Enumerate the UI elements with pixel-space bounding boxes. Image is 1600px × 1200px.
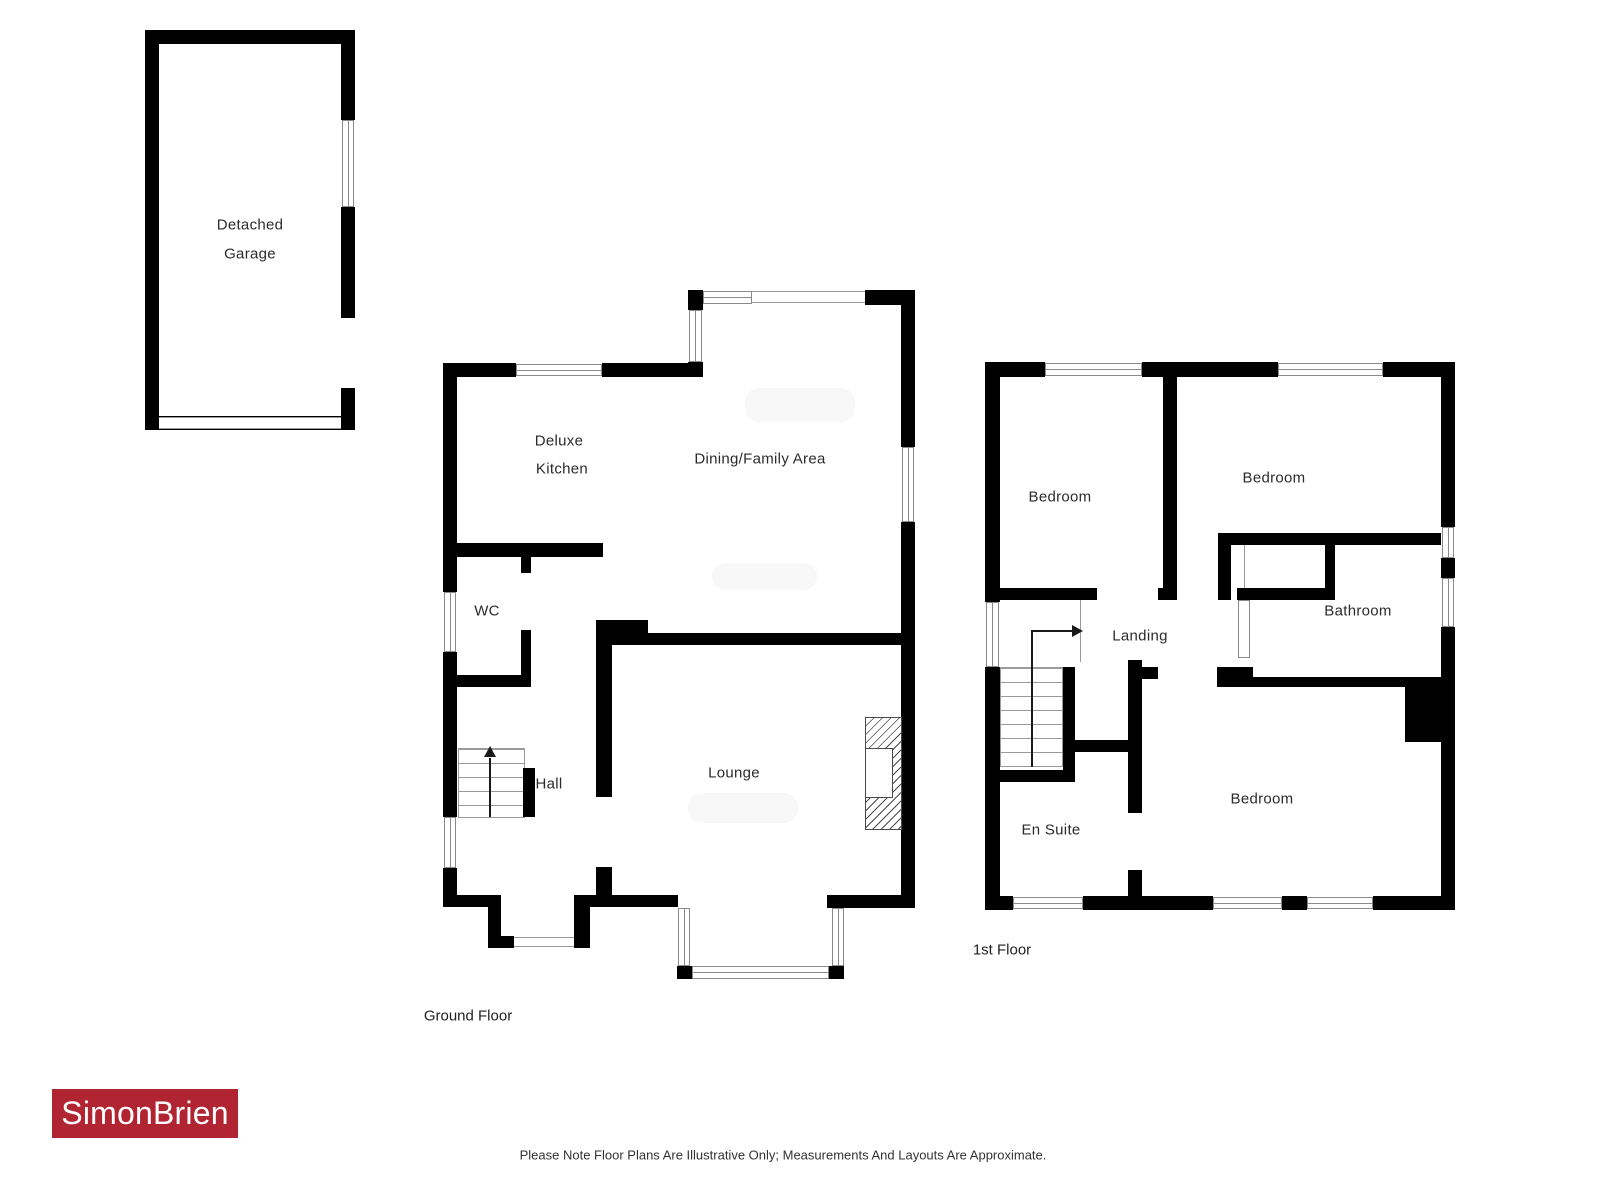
wall [901, 290, 915, 447]
wall [1237, 588, 1335, 600]
wall [1142, 362, 1278, 377]
wall [443, 675, 531, 687]
room-label-hall: Hall [535, 776, 562, 793]
window [1442, 578, 1454, 627]
floor-plan-canvas: Detached Garage [0, 0, 1600, 1200]
wall [1441, 362, 1455, 527]
window [689, 310, 702, 362]
wall [341, 30, 355, 120]
wall [688, 362, 703, 377]
wall [1325, 545, 1335, 588]
stairs-direction-line [489, 758, 491, 817]
faint-furniture-mark [712, 563, 817, 590]
window [1013, 897, 1083, 909]
wall [145, 30, 159, 430]
window [902, 447, 914, 522]
shower-screen-line [1244, 545, 1245, 588]
window [444, 592, 456, 652]
agency-logo-text: SimonBrien [61, 1095, 228, 1132]
wall [1163, 377, 1177, 589]
wall [1128, 660, 1142, 813]
room-label-bedroom-top-left: Bedroom [1029, 489, 1092, 506]
wall [646, 633, 901, 645]
wall [521, 557, 531, 573]
floor-title-first: 1st Floor [973, 942, 1031, 959]
stairs-up-arrow-icon [1072, 625, 1083, 637]
room-label-bathroom: Bathroom [1324, 603, 1391, 620]
wall [1158, 588, 1177, 600]
agency-logo: SimonBrien [52, 1089, 238, 1138]
wall [145, 30, 355, 44]
wall [688, 290, 703, 310]
window [444, 817, 456, 868]
bathroom-door [1238, 600, 1250, 658]
wall [985, 896, 1013, 910]
room-label-en-suite: En Suite [1021, 822, 1080, 839]
wall [1373, 896, 1455, 910]
wall [596, 645, 612, 797]
wall [1218, 533, 1231, 600]
room-label-wc: WC [474, 603, 500, 620]
wall [829, 966, 844, 979]
room-label-lounge: Lounge [708, 765, 760, 782]
window [1278, 363, 1383, 376]
wall [985, 588, 1097, 600]
room-label-garage-line2: Garage [224, 246, 276, 263]
window [1045, 363, 1142, 376]
staircase [458, 748, 525, 818]
wall [985, 362, 1000, 602]
wall [1441, 558, 1455, 578]
room-label-dining: Dining/Family Area [694, 451, 825, 468]
wall [1282, 896, 1307, 910]
wall [341, 207, 355, 318]
room-label-kitchen-line2: Kitchen [536, 461, 588, 478]
window [1307, 897, 1373, 909]
wall [1217, 677, 1441, 687]
room-label-garage-line1: Detached [217, 217, 284, 234]
wall [1000, 770, 1075, 782]
window [1442, 527, 1454, 558]
window-band [752, 291, 865, 303]
stairs-direction-line [1031, 630, 1073, 632]
wall [488, 936, 514, 948]
faint-furniture-mark [745, 388, 855, 422]
stairs-direction-line [1031, 631, 1033, 767]
wall [443, 543, 603, 557]
wall [523, 768, 535, 817]
garage-door [159, 417, 341, 429]
window [986, 602, 999, 667]
window [678, 908, 690, 966]
room-label-kitchen-line1: Deluxe [535, 433, 584, 450]
window [342, 120, 354, 207]
wall [901, 522, 915, 908]
wall [985, 667, 1000, 910]
disclaimer-text: Please Note Floor Plans Are Illustrative… [520, 1148, 1047, 1163]
window [703, 291, 752, 304]
wall [1070, 740, 1128, 752]
wall [602, 363, 688, 377]
room-label-bedroom-bottom: Bedroom [1231, 791, 1294, 808]
entrance-door [514, 937, 574, 947]
room-label-bedroom-top-right: Bedroom [1243, 470, 1306, 487]
stairs-up-arrow-icon [484, 746, 496, 757]
window [516, 364, 602, 376]
chimney-breast [1405, 687, 1441, 742]
wall [1128, 870, 1142, 896]
wall [596, 620, 648, 645]
wall [574, 895, 678, 907]
room-label-landing: Landing [1112, 628, 1168, 645]
faint-furniture-mark [688, 793, 798, 823]
wall [677, 966, 692, 979]
wall [1083, 896, 1213, 910]
wall [1441, 627, 1455, 910]
floor-title-ground: Ground Floor [424, 1008, 512, 1025]
wall [1218, 533, 1441, 545]
window [1213, 897, 1282, 909]
wall [1142, 667, 1158, 679]
wall [827, 895, 915, 908]
wall [1063, 667, 1075, 780]
window [692, 966, 829, 979]
window [832, 908, 844, 966]
wall [443, 363, 457, 592]
fireplace-opening [865, 748, 893, 798]
